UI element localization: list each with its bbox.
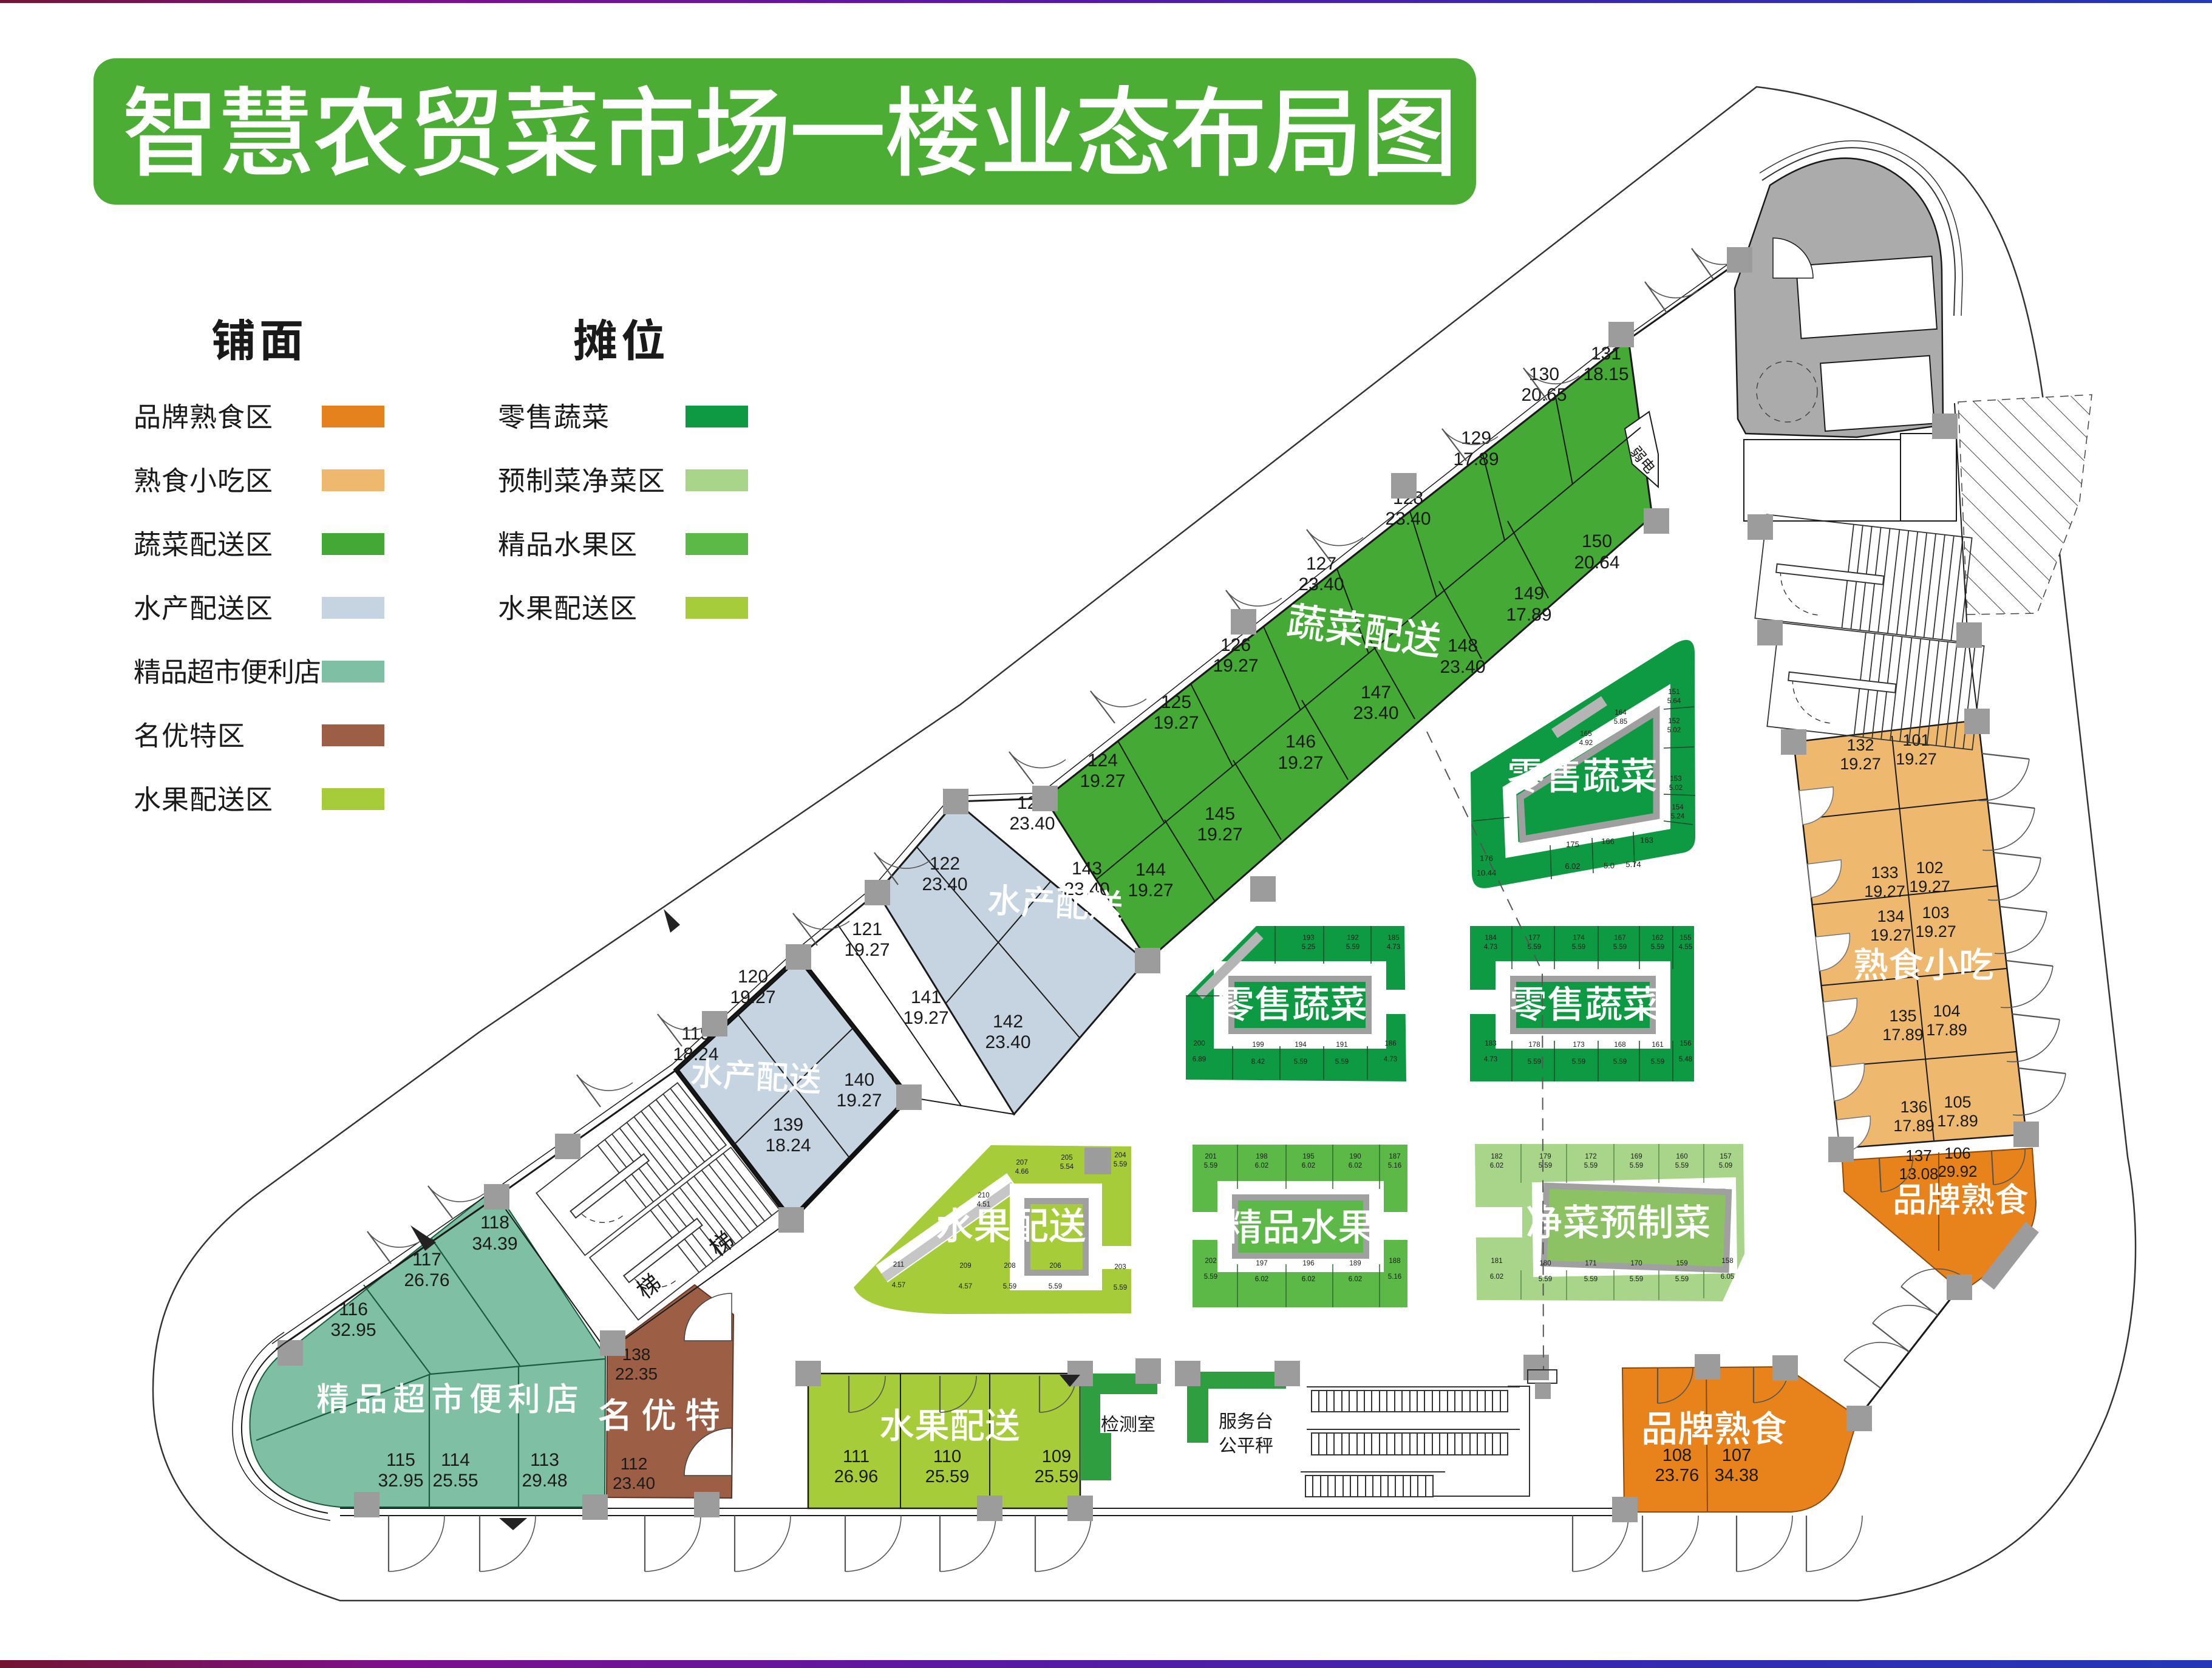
svg-text:210: 210 [978,1192,989,1199]
svg-text:106: 106 [1944,1144,1970,1162]
svg-text:160: 160 [1676,1153,1687,1160]
svg-text:19.27: 19.27 [1080,771,1125,791]
svg-text:6.89: 6.89 [1193,1056,1206,1063]
svg-text:198: 198 [1256,1153,1267,1160]
svg-text:4.57: 4.57 [959,1283,972,1290]
svg-text:5.59: 5.59 [1114,1161,1127,1168]
svg-text:169: 169 [1630,1153,1642,1160]
svg-text:190: 190 [1349,1153,1361,1160]
svg-text:199: 199 [1252,1041,1264,1049]
svg-text:178: 178 [1528,1041,1540,1049]
svg-text:171: 171 [1585,1260,1596,1267]
svg-text:197: 197 [1256,1260,1267,1267]
svg-text:141: 141 [911,987,941,1007]
svg-text:113: 113 [530,1450,559,1470]
svg-text:5.16: 5.16 [1388,1162,1401,1169]
svg-text:29.92: 29.92 [1938,1162,1977,1180]
svg-text:114: 114 [441,1450,470,1470]
svg-text:32.95: 32.95 [330,1320,376,1340]
svg-text:6.02: 6.02 [1490,1273,1503,1281]
svg-text:164: 164 [1615,709,1627,717]
svg-text:208: 208 [1004,1262,1015,1270]
svg-text:23.40: 23.40 [985,1032,1030,1052]
svg-text:156: 156 [1679,1040,1691,1047]
svg-text:5.59: 5.59 [1572,1058,1585,1066]
svg-text:6.02: 6.02 [1255,1162,1268,1169]
svg-text:149: 149 [1514,584,1544,604]
svg-text:147: 147 [1361,683,1391,703]
svg-text:170: 170 [1630,1260,1642,1267]
svg-text:165: 165 [1580,730,1591,738]
svg-text:29.48: 29.48 [522,1471,567,1491]
svg-text:4.57: 4.57 [892,1282,905,1289]
svg-text:5.74: 5.74 [1625,860,1641,869]
svg-text:135: 135 [1889,1007,1916,1025]
svg-text:5.59: 5.59 [1613,1058,1627,1066]
svg-text:133: 133 [1871,863,1898,882]
svg-text:4.73: 4.73 [1484,944,1497,951]
svg-text:23.40: 23.40 [613,1474,655,1493]
svg-text:19.27: 19.27 [1153,713,1199,733]
svg-text:136: 136 [1900,1098,1927,1116]
svg-text:140: 140 [844,1070,874,1090]
svg-text:112: 112 [621,1454,648,1473]
svg-text:5.64: 5.64 [1667,698,1681,705]
svg-text:22.35: 22.35 [615,1364,658,1383]
svg-text:174: 174 [1573,934,1585,942]
svg-text:181: 181 [1491,1258,1502,1265]
svg-text:17.89: 17.89 [1893,1117,1935,1135]
svg-text:5.59: 5.59 [1584,1162,1598,1169]
svg-text:155: 155 [1679,934,1691,942]
svg-text:5.59: 5.59 [1539,1162,1552,1169]
svg-text:157: 157 [1720,1153,1731,1160]
svg-text:122: 122 [930,854,960,874]
svg-text:196: 196 [1302,1260,1314,1267]
svg-text:151: 151 [1668,689,1679,696]
svg-text:115: 115 [386,1450,415,1470]
svg-text:207: 207 [1016,1159,1027,1166]
svg-text:23.40: 23.40 [922,874,967,894]
svg-text:5.0: 5.0 [1604,861,1615,870]
svg-text:182: 182 [1491,1153,1502,1160]
svg-text:19.27: 19.27 [1197,825,1242,845]
svg-text:5.16: 5.16 [1388,1273,1401,1281]
svg-text:177: 177 [1528,934,1540,942]
svg-text:102: 102 [1916,859,1943,877]
svg-text:211: 211 [893,1261,904,1268]
svg-text:19.27: 19.27 [903,1008,948,1028]
svg-text:192: 192 [1347,934,1358,942]
svg-text:159: 159 [1676,1260,1687,1267]
svg-text:5.59: 5.59 [1003,1283,1016,1290]
svg-text:17.89: 17.89 [1506,605,1551,625]
svg-text:101: 101 [1902,731,1930,749]
svg-text:5.59: 5.59 [1049,1283,1062,1290]
svg-text:19.27: 19.27 [1915,922,1956,941]
svg-text:17.89: 17.89 [1926,1021,1967,1039]
svg-text:6.02: 6.02 [1349,1162,1362,1169]
svg-text:150: 150 [1582,531,1612,551]
svg-text:19.27: 19.27 [1213,656,1258,676]
svg-text:118: 118 [480,1213,509,1233]
svg-text:162: 162 [1652,934,1663,942]
svg-text:132: 132 [1846,736,1874,754]
svg-text:8.42: 8.42 [1251,1058,1265,1066]
svg-text:4.55: 4.55 [1679,944,1692,951]
svg-text:126: 126 [1220,635,1251,655]
svg-text:161: 161 [1652,1041,1663,1049]
svg-text:209: 209 [959,1262,971,1270]
svg-text:23.76: 23.76 [1655,1466,1700,1485]
svg-text:5.59: 5.59 [1204,1162,1217,1169]
svg-text:154: 154 [1672,804,1684,811]
svg-text:5.59: 5.59 [1528,1058,1541,1066]
svg-text:175: 175 [1566,840,1579,849]
svg-text:6.02: 6.02 [1302,1162,1315,1169]
svg-text:193: 193 [1302,934,1314,942]
svg-text:173: 173 [1573,1041,1584,1049]
svg-text:138: 138 [622,1345,651,1364]
svg-text:19.27: 19.27 [844,940,890,960]
svg-text:167: 167 [1614,934,1625,942]
svg-text:206: 206 [1049,1262,1061,1270]
svg-text:107: 107 [1722,1446,1751,1465]
svg-text:148: 148 [1448,636,1478,656]
svg-text:5.59: 5.59 [1675,1276,1689,1283]
svg-text:19.27: 19.27 [1864,882,1905,900]
svg-text:32.95: 32.95 [378,1471,423,1491]
svg-text:5.59: 5.59 [1294,1058,1307,1066]
svg-text:19.27: 19.27 [1909,877,1950,896]
svg-text:183: 183 [1485,1040,1496,1047]
svg-text:186: 186 [1384,1040,1396,1047]
svg-text:5.59: 5.59 [1572,944,1585,951]
svg-text:6.02: 6.02 [1349,1276,1362,1283]
svg-text:203: 203 [1114,1264,1126,1271]
svg-text:19.27: 19.27 [1896,750,1937,768]
svg-text:5.59: 5.59 [1346,944,1360,951]
svg-text:191: 191 [1336,1041,1347,1049]
svg-text:19.27: 19.27 [1278,753,1323,773]
svg-text:5.59: 5.59 [1630,1276,1643,1283]
svg-text:5.25: 5.25 [1302,944,1315,951]
svg-text:105: 105 [1944,1093,1971,1111]
svg-text:179: 179 [1539,1153,1551,1160]
svg-text:152: 152 [1668,718,1679,725]
svg-text:5.59: 5.59 [1204,1273,1217,1281]
svg-text:23.40: 23.40 [1009,814,1055,834]
svg-text:103: 103 [1922,904,1949,922]
svg-text:109: 109 [1042,1447,1071,1466]
svg-text:19.27: 19.27 [1870,926,1911,944]
svg-text:5.59: 5.59 [1114,1284,1127,1292]
svg-text:201: 201 [1205,1153,1216,1160]
svg-text:5.02: 5.02 [1667,727,1681,734]
svg-text:19.27: 19.27 [836,1091,882,1111]
svg-text:19.27: 19.27 [1840,755,1881,773]
svg-text:205: 205 [1061,1154,1072,1162]
svg-text:176: 176 [1480,854,1493,863]
svg-text:200: 200 [1193,1040,1205,1047]
svg-text:111: 111 [843,1447,869,1466]
svg-text:204: 204 [1114,1152,1126,1159]
svg-text:158: 158 [1721,1258,1733,1265]
svg-text:17.89: 17.89 [1882,1026,1924,1044]
svg-text:172: 172 [1585,1153,1596,1160]
svg-text:5.54: 5.54 [1060,1163,1074,1171]
svg-text:153: 153 [1670,775,1681,783]
svg-text:20.64: 20.64 [1574,553,1619,573]
svg-text:5.59: 5.59 [1651,1058,1664,1066]
svg-text:187: 187 [1389,1153,1400,1160]
svg-text:121: 121 [852,919,882,939]
svg-text:18.24: 18.24 [673,1044,718,1064]
svg-text:19.27: 19.27 [1128,880,1173,900]
svg-text:25.55: 25.55 [432,1471,478,1491]
svg-text:6.02: 6.02 [1255,1276,1268,1283]
svg-text:104: 104 [1933,1002,1960,1020]
svg-text:4.73: 4.73 [1387,944,1400,951]
svg-text:4.51: 4.51 [977,1201,990,1208]
svg-text:163: 163 [1640,836,1653,845]
svg-text:18.24: 18.24 [765,1135,811,1156]
svg-text:5.59: 5.59 [1335,1058,1349,1066]
svg-text:108: 108 [1662,1446,1692,1465]
svg-text:4.92: 4.92 [1579,740,1593,747]
svg-text:129: 129 [1461,428,1491,448]
svg-text:143: 143 [1072,859,1102,879]
svg-text:202: 202 [1205,1258,1216,1265]
svg-text:5.59: 5.59 [1584,1276,1598,1283]
svg-text:110: 110 [933,1447,961,1466]
svg-text:168: 168 [1614,1041,1625,1049]
svg-text:5.59: 5.59 [1630,1162,1643,1169]
svg-text:25.59: 25.59 [925,1467,970,1486]
svg-text:4.66: 4.66 [1015,1168,1029,1176]
svg-text:4.73: 4.73 [1484,1056,1497,1063]
svg-text:146: 146 [1285,732,1316,752]
svg-text:185: 185 [1387,934,1399,942]
svg-text:5.59: 5.59 [1651,944,1664,951]
svg-text:6.05: 6.05 [1721,1273,1734,1281]
svg-text:120: 120 [738,967,768,987]
svg-text:166: 166 [1601,837,1615,846]
svg-text:5.59: 5.59 [1675,1162,1689,1169]
svg-text:34.38: 34.38 [1715,1466,1759,1485]
svg-text:26.76: 26.76 [404,1270,449,1290]
svg-text:189: 189 [1349,1260,1361,1267]
svg-text:195: 195 [1302,1153,1314,1160]
svg-text:26.96: 26.96 [834,1467,879,1486]
svg-text:5.59: 5.59 [1539,1276,1552,1283]
svg-text:23.40: 23.40 [1440,657,1485,677]
svg-text:137: 137 [1905,1146,1931,1165]
svg-text:184: 184 [1485,934,1497,942]
svg-text:142: 142 [993,1012,1023,1032]
svg-text:194: 194 [1295,1041,1307,1049]
svg-text:5.02: 5.02 [1669,785,1683,792]
svg-text:5.09: 5.09 [1719,1162,1732,1169]
svg-text:180: 180 [1539,1260,1551,1267]
svg-text:139: 139 [773,1115,803,1135]
svg-text:5.85: 5.85 [1614,718,1627,726]
svg-text:134: 134 [1877,907,1904,925]
svg-text:17.89: 17.89 [1937,1112,1978,1130]
svg-text:23.40: 23.40 [1353,703,1398,723]
svg-text:18.15: 18.15 [1583,364,1628,384]
svg-text:34.39: 34.39 [472,1234,517,1254]
svg-text:145: 145 [1205,804,1235,824]
svg-text:5.59: 5.59 [1613,944,1627,951]
svg-text:188: 188 [1389,1258,1400,1265]
svg-text:144: 144 [1135,860,1166,880]
svg-text:6.02: 6.02 [1565,862,1580,871]
svg-text:25.59: 25.59 [1035,1467,1079,1486]
svg-text:4.73: 4.73 [1384,1056,1397,1063]
svg-text:6.02: 6.02 [1490,1162,1503,1169]
svg-text:5.48: 5.48 [1679,1056,1692,1063]
svg-text:5.24: 5.24 [1671,813,1685,820]
svg-text:6.02: 6.02 [1302,1276,1315,1283]
